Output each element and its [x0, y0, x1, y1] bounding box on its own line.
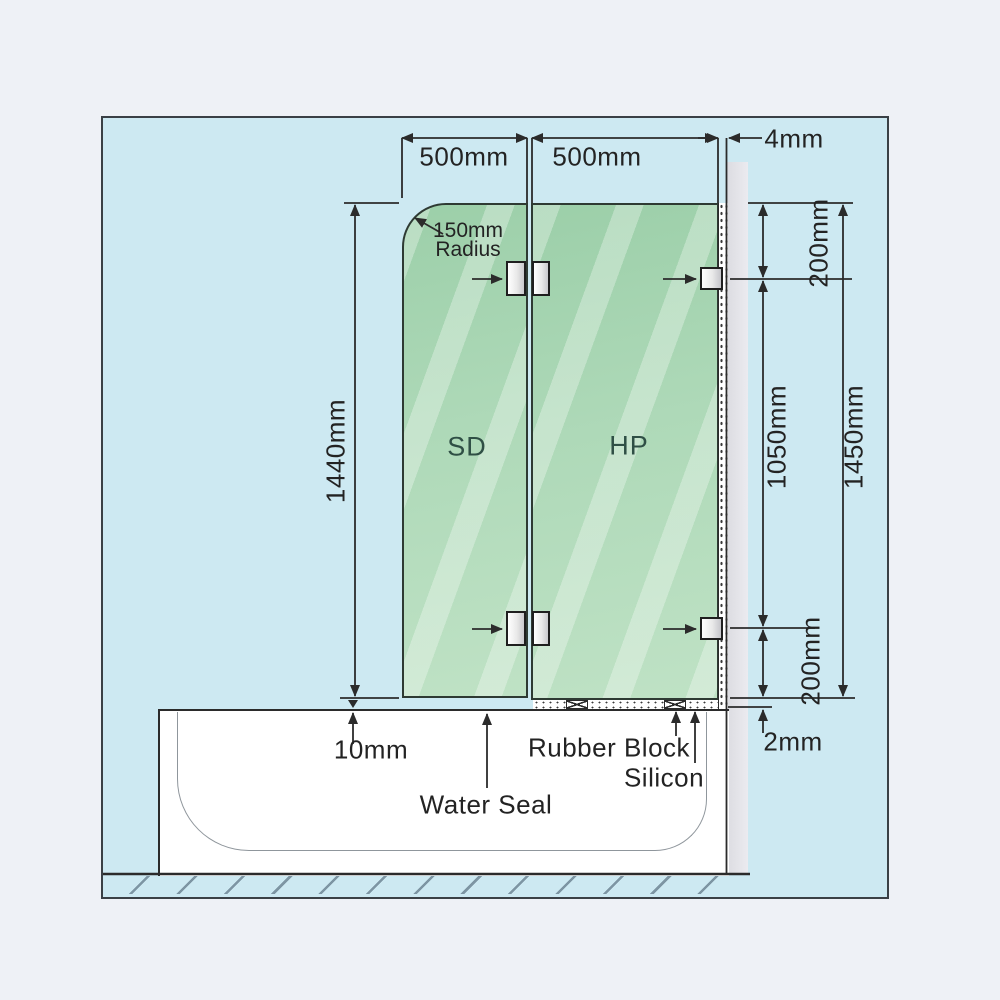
- wall-bracket-bottom: [700, 617, 723, 640]
- rubber-block-marker: [664, 700, 686, 709]
- dimension-panel-height: 1450mm: [839, 385, 870, 489]
- panel-hinge-bottom: [506, 611, 550, 646]
- wall-bracket-top: [700, 267, 723, 290]
- dimension-bracket-span: 1050mm: [762, 385, 793, 489]
- dimension-hp-width: 500mm: [552, 142, 641, 173]
- hinge-leaf: [532, 261, 550, 296]
- dimension-base-gap: 2mm: [763, 727, 822, 758]
- wall-strip: [727, 162, 748, 874]
- rubber-block-marker: [566, 700, 588, 709]
- dimension-wall-gap: 4mm: [764, 124, 823, 155]
- hinge-leaf: [506, 261, 526, 296]
- label-water-seal: Water Seal: [420, 790, 553, 821]
- dimension-top-bracket-offset: 200mm: [804, 198, 835, 287]
- corner-radius-word: Radius: [433, 240, 503, 259]
- hinge-leaf: [532, 611, 550, 646]
- label-panel-hp: HP: [609, 431, 649, 462]
- floor-hatching: [103, 876, 727, 894]
- silicon-strip-base: [533, 700, 718, 710]
- hinge-leaf: [506, 611, 526, 646]
- label-rubber-block: Rubber Block: [528, 733, 690, 764]
- label-panel-sd: SD: [447, 432, 487, 463]
- panel-hinge-top: [506, 261, 550, 296]
- corner-radius-note: 150mm Radius: [433, 221, 503, 259]
- diagram-canvas: 500mm 500mm 4mm 150mm Radius 1440mm 200m…: [0, 0, 1000, 1000]
- dimension-floor-gap: 10mm: [334, 735, 408, 766]
- dimension-sd-width: 500mm: [419, 142, 508, 173]
- dimension-bottom-bracket-offset: 200mm: [796, 616, 827, 705]
- dimension-door-height: 1440mm: [321, 399, 352, 503]
- label-silicon: Silicon: [624, 763, 704, 794]
